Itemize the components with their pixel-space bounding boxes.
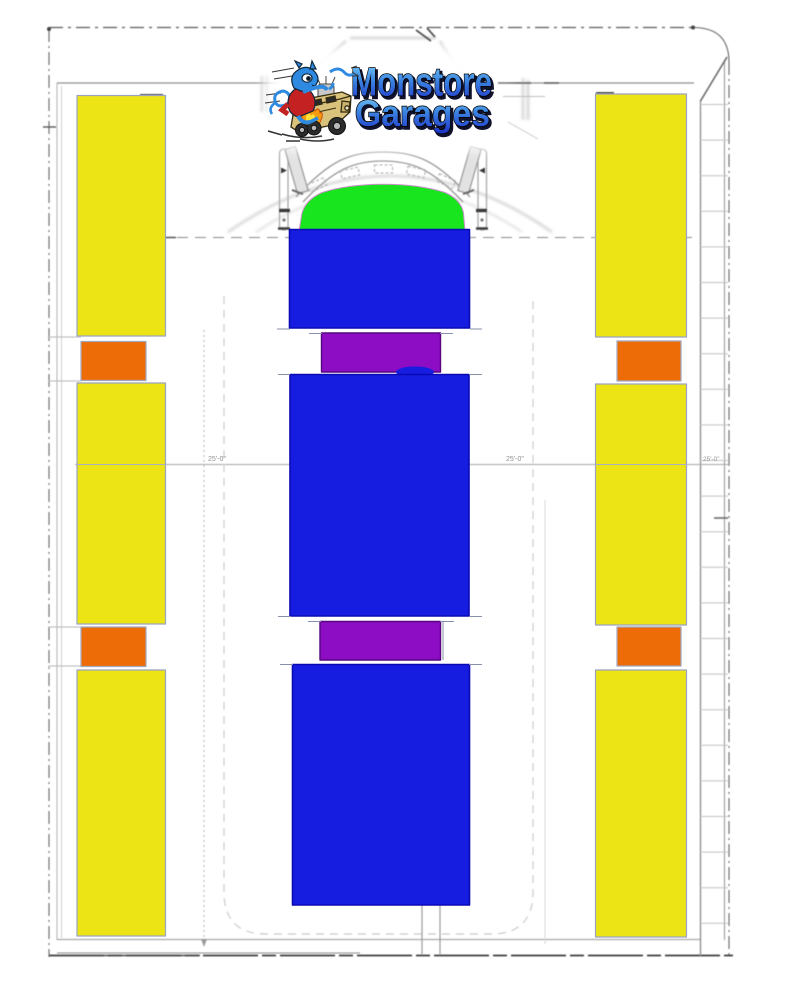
svg-text:25'-0": 25'-0": [208, 456, 226, 463]
svg-text:25'-0": 25'-0": [506, 456, 524, 463]
svg-text:Garages: Garages: [355, 93, 490, 134]
svg-text:25'-0": 25'-0": [703, 456, 720, 463]
